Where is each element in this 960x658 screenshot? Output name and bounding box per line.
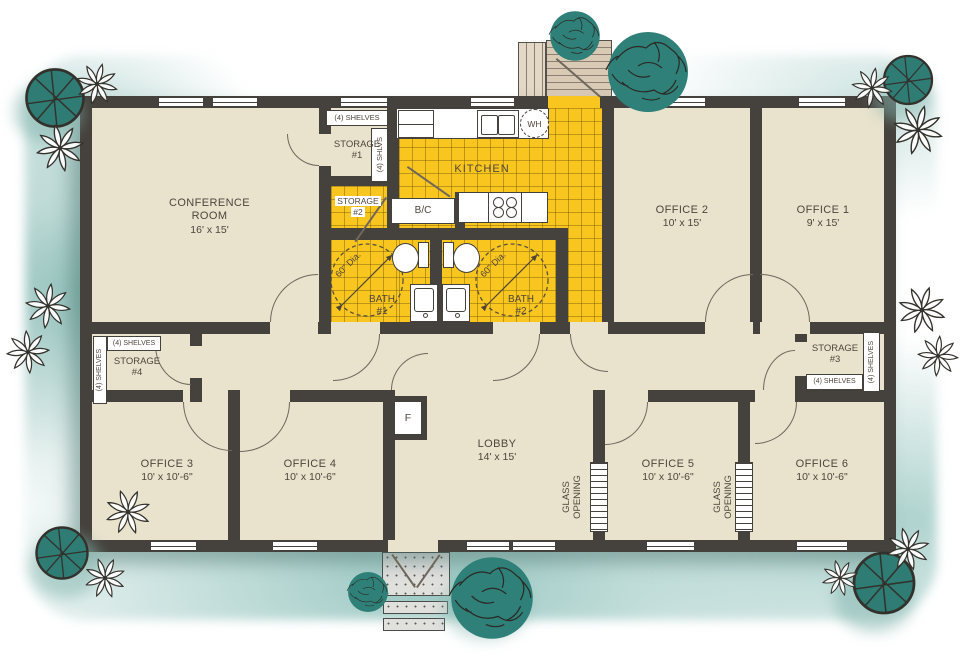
wall-segment <box>331 228 568 240</box>
wall-segment <box>318 322 331 334</box>
door-gap-bottom-entry <box>388 540 438 552</box>
room-label-storage1: STORAGE #1 <box>328 139 386 162</box>
room-label-storage2: STORAGE #2 <box>328 196 388 217</box>
lobby-dims: 14' x 15' <box>447 451 547 464</box>
wall-segment <box>290 390 386 402</box>
bath2-name: BATH <box>499 294 543 306</box>
wall-segment <box>608 322 705 334</box>
storage2-name: STORAGE <box>335 196 380 206</box>
room-label-storage4: STORAGE #4 <box>108 356 166 379</box>
room-label-office3: OFFICE 3 10' x 10'-6" <box>107 458 227 484</box>
glass-opening-panel <box>735 462 753 532</box>
window <box>798 97 846 107</box>
bath-sink <box>410 284 438 322</box>
conference-name: CONFERENCE ROOM <box>152 197 267 224</box>
room-label-bath2: BATH #2 <box>499 294 543 317</box>
glass-opening-text: OPENING <box>724 457 735 537</box>
stoop-step-2 <box>383 618 445 631</box>
window <box>466 541 510 551</box>
office6-dims: 10' x 10'-6" <box>762 471 882 484</box>
window <box>646 541 695 551</box>
storage2-number: #2 <box>351 207 364 217</box>
room-label-storage3: STORAGE #3 <box>806 343 864 366</box>
entry-deck-side <box>518 42 546 98</box>
room-label-office5: OFFICE 5 10' x 10'-6" <box>608 458 728 484</box>
room-label-office6: OFFICE 6 10' x 10'-6" <box>762 458 882 484</box>
furnace-label: F <box>405 412 411 424</box>
office5-dims: 10' x 10'-6" <box>608 471 728 484</box>
shelves-text: (4) SHELVES <box>334 114 379 122</box>
shelves-label: (4) SHELVES <box>806 374 863 390</box>
toilet-bowl <box>453 243 480 273</box>
wall-segment <box>92 322 270 334</box>
water-heater-label: WH <box>527 119 541 129</box>
office4-name: OFFICE 4 <box>250 458 370 471</box>
shelves-label: (4) SHELVES <box>107 336 161 351</box>
toilet-bowl <box>392 243 419 273</box>
office2-name: OFFICE 2 <box>622 204 742 217</box>
furnace-closet: F <box>389 396 427 440</box>
storage4-number: #4 <box>108 367 166 378</box>
office4-dims: 10' x 10'-6" <box>250 471 370 484</box>
office5-name: OFFICE 5 <box>608 458 728 471</box>
shelves-text: (4) SHELVES <box>813 378 855 385</box>
room-label-conference: CONFERENCE ROOM 16' x 15' <box>152 197 267 237</box>
room-label-bath1: BATH #1 <box>360 294 404 317</box>
window <box>796 541 848 551</box>
lobby-name: LOBBY <box>447 438 547 451</box>
shelves-text: (4) SHELVES <box>96 349 103 391</box>
glass-opening-text: OPENING <box>573 457 584 537</box>
wall-segment <box>380 322 493 334</box>
door-gap-top-entry <box>548 96 600 108</box>
wall-segment <box>540 322 570 334</box>
office1-dims: 9' x 15' <box>763 217 883 230</box>
wall-segment <box>795 334 807 342</box>
window <box>512 541 556 551</box>
window <box>340 97 388 107</box>
window <box>470 97 515 107</box>
bath1-name: BATH <box>360 294 404 306</box>
shelves-label-vertical: (4) SHELVES <box>863 332 880 392</box>
office1-name: OFFICE 1 <box>763 204 883 217</box>
cabinet <box>398 110 434 138</box>
storage3-number: #3 <box>806 354 864 365</box>
glass-opening-panel <box>590 462 608 532</box>
office2-dims: 10' x 15' <box>622 217 742 230</box>
stoop-step-1 <box>383 601 448 614</box>
office6-name: OFFICE 6 <box>762 458 882 471</box>
bath2-number: #2 <box>499 306 543 318</box>
storage1-number: #1 <box>328 150 386 161</box>
broom-closet: B/C <box>391 198 455 224</box>
shelves-text: (4) SHELVES <box>868 341 875 383</box>
entry-stoop <box>382 552 450 596</box>
window <box>150 541 197 551</box>
window <box>212 97 258 107</box>
room-label-office1: OFFICE 1 9' x 15' <box>763 204 883 230</box>
window <box>658 97 706 107</box>
wall-exterior-right <box>884 96 896 552</box>
broom-closet-label: B/C <box>415 206 432 217</box>
office3-name: OFFICE 3 <box>107 458 227 471</box>
window <box>272 541 318 551</box>
wall-segment <box>602 108 614 322</box>
storage4-name: STORAGE <box>108 356 166 367</box>
room-label-office2: OFFICE 2 10' x 15' <box>622 204 742 230</box>
office3-dims: 10' x 10'-6" <box>107 471 227 484</box>
shelves-label: (4) SHELVES <box>326 110 388 126</box>
shelves-label-vertical: (4) SHELVES <box>93 336 107 404</box>
wall-segment <box>331 176 399 186</box>
room-label-lobby: LOBBY 14' x 15' <box>447 438 547 464</box>
kitchen-sink <box>477 110 519 138</box>
water-heater: WH <box>520 109 549 138</box>
storage3-name: STORAGE <box>806 343 864 354</box>
room-label-kitchen: KITCHEN <box>432 163 532 176</box>
bath-sink <box>442 284 470 322</box>
wall-segment <box>556 236 568 322</box>
toilet-tank <box>418 242 429 268</box>
wall-segment <box>190 334 202 346</box>
entry-deck <box>546 40 612 98</box>
shelves-text: (4) SHELVES <box>113 340 155 347</box>
glass-opening-label: GLASS OPENING <box>713 457 737 537</box>
floor-plan: OPT. DW WH B/C F (4) SHELVES (4) SHLVS (… <box>0 0 960 658</box>
window <box>158 97 204 107</box>
bath1-number: #1 <box>360 306 404 318</box>
wall-segment <box>753 322 760 334</box>
storage1-name: STORAGE <box>328 139 386 150</box>
glass-opening-label: GLASS OPENING <box>562 457 586 537</box>
room-label-office4: OFFICE 4 10' x 10'-6" <box>250 458 370 484</box>
wall-exterior-left <box>80 96 92 552</box>
wall-segment <box>319 166 331 322</box>
stove-burners <box>488 192 522 223</box>
kitchen-name: KITCHEN <box>432 163 532 176</box>
conference-dims: 16' x 15' <box>152 224 267 237</box>
wall-segment <box>190 378 202 402</box>
